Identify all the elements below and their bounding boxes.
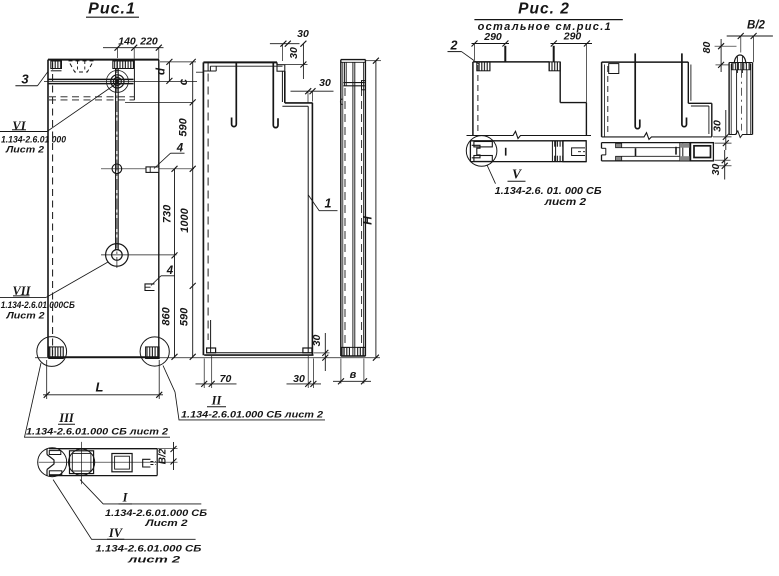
svg-text:Лист 2: Лист 2 (144, 518, 188, 529)
svg-text:1.134-2.6. 01. 000 СБ: 1.134-2.6. 01. 000 СБ (495, 186, 602, 197)
svg-text:590: 590 (179, 307, 191, 326)
svg-text:1.134-2.6.01.000 СБ лист 2: 1.134-2.6.01.000 СБ лист 2 (181, 409, 324, 420)
svg-text:4: 4 (176, 142, 184, 154)
svg-text:220: 220 (139, 36, 158, 48)
svg-text:3: 3 (21, 71, 29, 86)
svg-text:30: 30 (311, 335, 323, 347)
svg-text:В/2: В/2 (747, 20, 766, 32)
svg-text:290: 290 (483, 31, 502, 43)
svg-text:1: 1 (325, 196, 332, 210)
svg-text:Лист 2: Лист 2 (5, 310, 45, 320)
svg-text:730: 730 (162, 204, 174, 223)
svg-text:II: II (211, 393, 223, 407)
svg-text:590: 590 (178, 117, 190, 136)
svg-text:c: c (178, 78, 190, 85)
svg-text:1.134-2.6.01.000СБ: 1.134-2.6.01.000СБ (1, 300, 75, 310)
svg-text:1.134-2.6.01.000 СБ лист 2: 1.134-2.6.01.000 СБ лист 2 (26, 427, 169, 438)
svg-text:лист 2: лист 2 (543, 197, 586, 208)
svg-text:2: 2 (450, 38, 458, 52)
svg-text:d: d (156, 67, 168, 75)
svg-text:Рис.1: Рис.1 (88, 1, 136, 18)
svg-text:1.134-2.6.01 000: 1.134-2.6.01 000 (1, 135, 67, 145)
svg-text:30: 30 (288, 47, 300, 59)
svg-text:Рис. 2: Рис. 2 (518, 1, 570, 18)
svg-text:в: в (350, 369, 357, 381)
svg-text:30: 30 (710, 164, 722, 176)
svg-text:80: 80 (701, 42, 713, 54)
svg-text:IV: IV (108, 526, 124, 540)
svg-text:V: V (512, 166, 522, 181)
svg-text:860: 860 (161, 306, 173, 325)
svg-text:30: 30 (319, 77, 331, 89)
svg-text:Лист 2: Лист 2 (5, 145, 45, 155)
svg-text:III: III (58, 411, 75, 425)
svg-text:В/2: В/2 (158, 448, 169, 464)
svg-text:140: 140 (118, 36, 136, 48)
svg-text:30: 30 (293, 373, 305, 385)
svg-text:L: L (96, 380, 104, 395)
svg-text:290: 290 (563, 31, 582, 43)
svg-text:70: 70 (220, 373, 232, 385)
svg-text:H: H (361, 216, 375, 225)
svg-text:30: 30 (712, 120, 724, 132)
svg-text:30: 30 (297, 28, 309, 40)
svg-text:I: I (122, 490, 129, 504)
svg-text:1000: 1000 (179, 207, 191, 232)
svg-text:1.134-2.6.01.000 СБ: 1.134-2.6.01.000 СБ (95, 544, 201, 555)
svg-text:лист 2: лист 2 (127, 554, 182, 565)
svg-text:VI: VI (12, 119, 26, 133)
svg-text:4: 4 (166, 265, 174, 277)
